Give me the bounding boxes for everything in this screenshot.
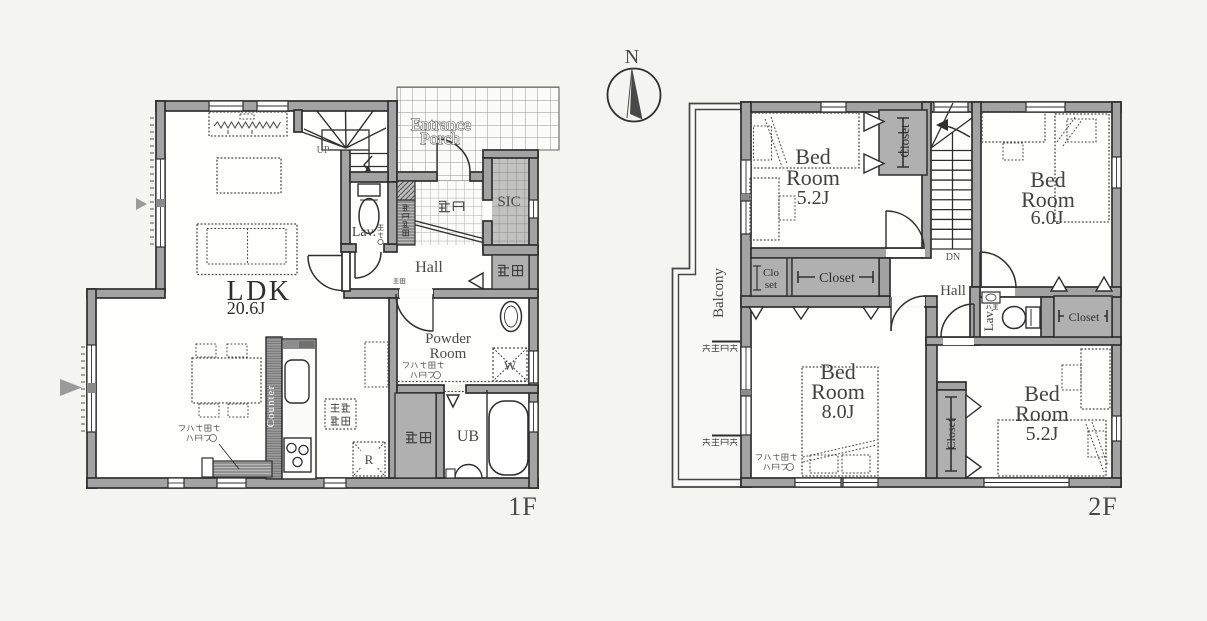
svg-text:Room: Room xyxy=(430,346,467,362)
svg-text:UP: UP xyxy=(317,145,330,156)
svg-text:Hall: Hall xyxy=(940,283,966,299)
svg-text:Balcony: Balcony xyxy=(711,268,727,318)
svg-text:8.0J: 8.0J xyxy=(822,401,855,423)
svg-text:2F: 2F xyxy=(1088,492,1117,521)
svg-text:1F: 1F xyxy=(508,492,537,521)
svg-text:Lav.: Lav. xyxy=(352,225,376,240)
svg-text:5.2J: 5.2J xyxy=(1026,423,1059,445)
svg-text:Hall: Hall xyxy=(415,259,443,276)
svg-text:set: set xyxy=(765,279,777,291)
svg-text:Closet: Closet xyxy=(944,418,958,449)
svg-text:Powder: Powder xyxy=(425,331,471,347)
svg-text:6.0J: 6.0J xyxy=(1031,207,1064,229)
svg-text:Porch: Porch xyxy=(420,129,460,148)
svg-text:Counter: Counter xyxy=(265,385,277,427)
svg-text:Closet: Closet xyxy=(1069,310,1100,324)
svg-text:UB: UB xyxy=(457,428,479,445)
svg-text:20.6J: 20.6J xyxy=(227,298,266,318)
svg-text:SIC: SIC xyxy=(497,194,520,210)
svg-text:DN: DN xyxy=(946,252,960,263)
svg-text:Lav.: Lav. xyxy=(981,309,996,332)
svg-text:W: W xyxy=(504,358,517,373)
svg-text:Closet: Closet xyxy=(897,124,912,158)
svg-text:N: N xyxy=(625,46,639,68)
svg-text:5.2J: 5.2J xyxy=(797,187,830,209)
svg-text:Clo: Clo xyxy=(763,267,779,279)
svg-text:Closet: Closet xyxy=(819,271,855,286)
svg-text:R: R xyxy=(365,452,374,467)
